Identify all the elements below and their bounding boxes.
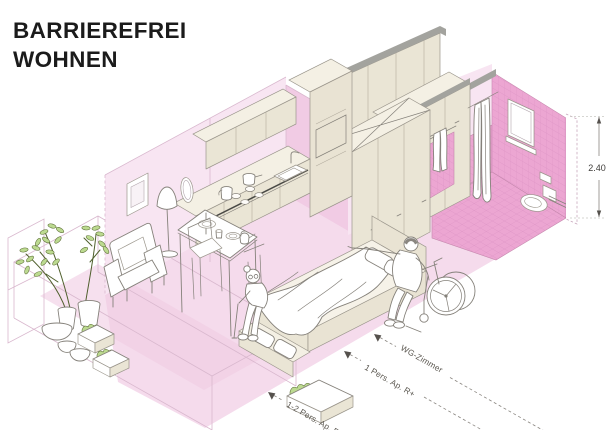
- cup: [216, 230, 222, 238]
- title-line-1: BARRIEREFREI: [13, 18, 187, 43]
- man-shoe: [394, 322, 405, 328]
- isometric-apartment-illustration: 2.40 WG-Zimmer 1 Pers. Ap. R+ 1-2 Pers. …: [0, 0, 610, 430]
- poster-canvas: 2.40 WG-Zimmer 1 Pers. Ap. R+ 1-2 Pers. …: [0, 0, 610, 430]
- woman-shoe: [248, 335, 258, 341]
- woman-hair-bun: [244, 266, 250, 272]
- module-label-1pers: 1 Pers. Ap. R+: [363, 362, 417, 399]
- title-line-2: WOHNEN: [13, 47, 118, 72]
- poster-title: BARRIEREFREI WOHNEN: [13, 18, 187, 72]
- wall-top-band-side: [440, 26, 446, 36]
- arrow-up: [597, 117, 601, 124]
- man-torso: [393, 250, 422, 292]
- plate: [226, 233, 240, 240]
- height-dimension-label: 2.40: [588, 163, 606, 173]
- plate: [199, 220, 216, 228]
- wheelchair-caster: [420, 314, 428, 322]
- woman-shoe: [238, 334, 248, 340]
- arrow-down: [597, 211, 601, 218]
- module-label-wg: WG-Zimmer: [399, 343, 445, 375]
- cut-wall-edge: [566, 114, 577, 224]
